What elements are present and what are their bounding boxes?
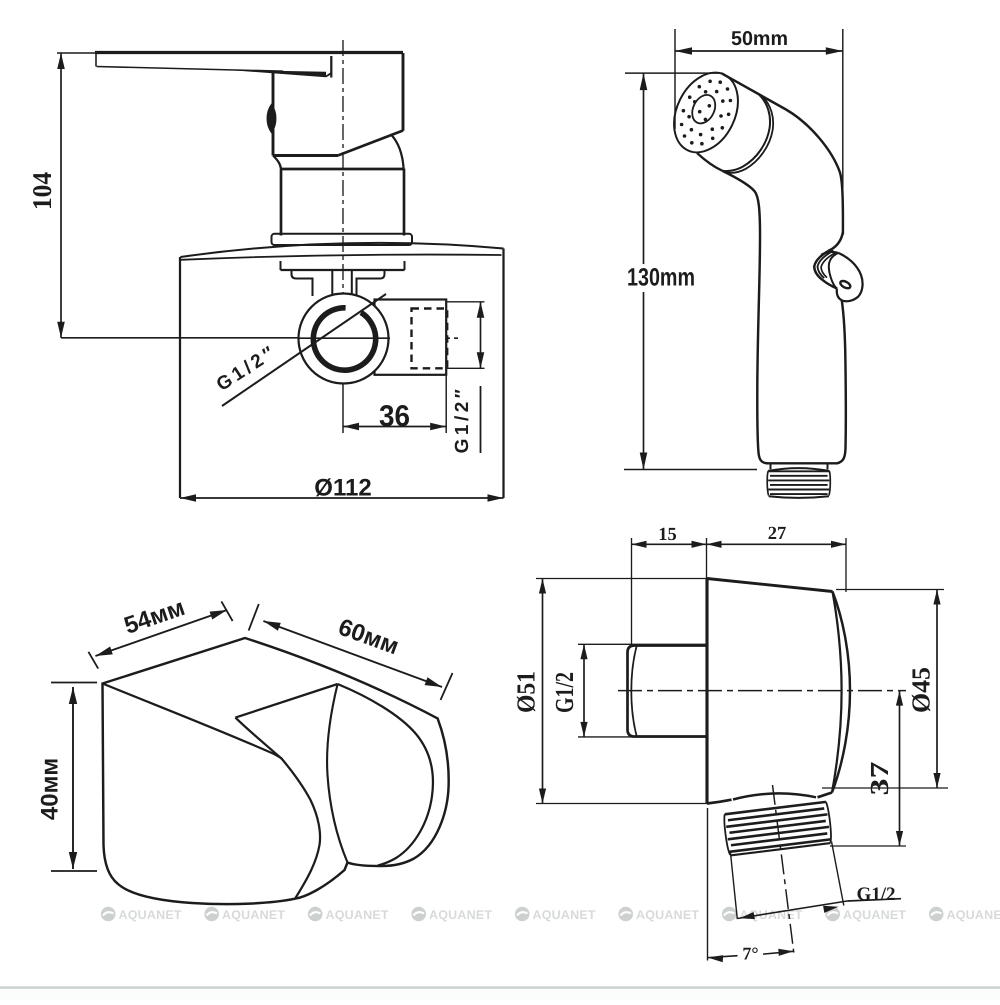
svg-text:27: 27 [768, 524, 787, 544]
svg-text:AQUANET: AQUANET [429, 908, 492, 922]
svg-text:AQUANET: AQUANET [326, 908, 389, 922]
svg-text:Ø112: Ø112 [314, 475, 371, 502]
svg-text:130mm: 130mm [627, 264, 695, 292]
svg-text:Ø51: Ø51 [512, 671, 541, 713]
svg-text:36: 36 [379, 400, 410, 433]
svg-text:37: 37 [865, 762, 894, 796]
svg-text:AQUANET: AQUANET [533, 908, 596, 922]
svg-text:Ø45: Ø45 [907, 667, 936, 713]
svg-text:40мм: 40мм [37, 758, 64, 820]
svg-text:AQUANET: AQUANET [222, 908, 285, 922]
svg-text:G1/2″: G1/2″ [452, 386, 473, 454]
svg-text:7°: 7° [742, 944, 758, 964]
svg-text:AQUANET: AQUANET [119, 908, 182, 922]
svg-text:104: 104 [27, 172, 57, 210]
svg-text:15: 15 [658, 525, 677, 545]
svg-text:50mm: 50mm [731, 28, 788, 50]
svg-text:AQUANET: AQUANET [843, 908, 906, 922]
svg-text:AQUANET: AQUANET [636, 908, 699, 922]
svg-text:G1/2: G1/2 [856, 884, 895, 905]
svg-text:AQUANET: AQUANET [947, 908, 1000, 922]
svg-text:G1/2: G1/2 [550, 672, 579, 713]
